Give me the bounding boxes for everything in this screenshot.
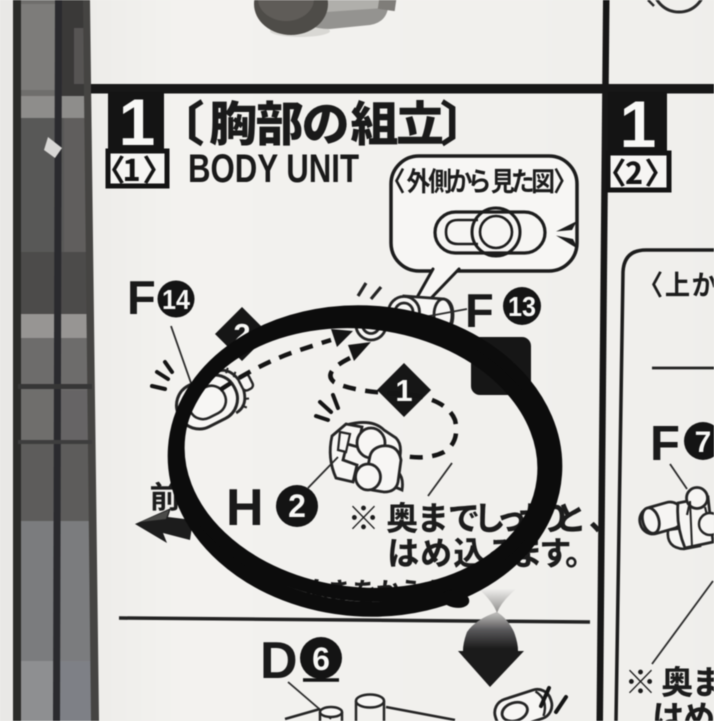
svg-text:1: 1 — [620, 87, 657, 161]
svg-text:F: F — [127, 271, 156, 324]
svg-text:7: 7 — [695, 426, 712, 459]
svg-text:F: F — [650, 417, 680, 471]
svg-text:H: H — [226, 479, 264, 537]
svg-text:F: F — [465, 284, 494, 337]
svg-text:D: D — [260, 632, 298, 690]
svg-text:BODY UNIT: BODY UNIT — [188, 147, 359, 191]
svg-text:6: 6 — [312, 641, 330, 677]
svg-text:13: 13 — [508, 291, 536, 322]
svg-text:1: 1 — [119, 85, 156, 159]
svg-text:1: 1 — [395, 373, 412, 408]
svg-text:2: 2 — [288, 488, 306, 524]
svg-text:14: 14 — [162, 284, 190, 315]
